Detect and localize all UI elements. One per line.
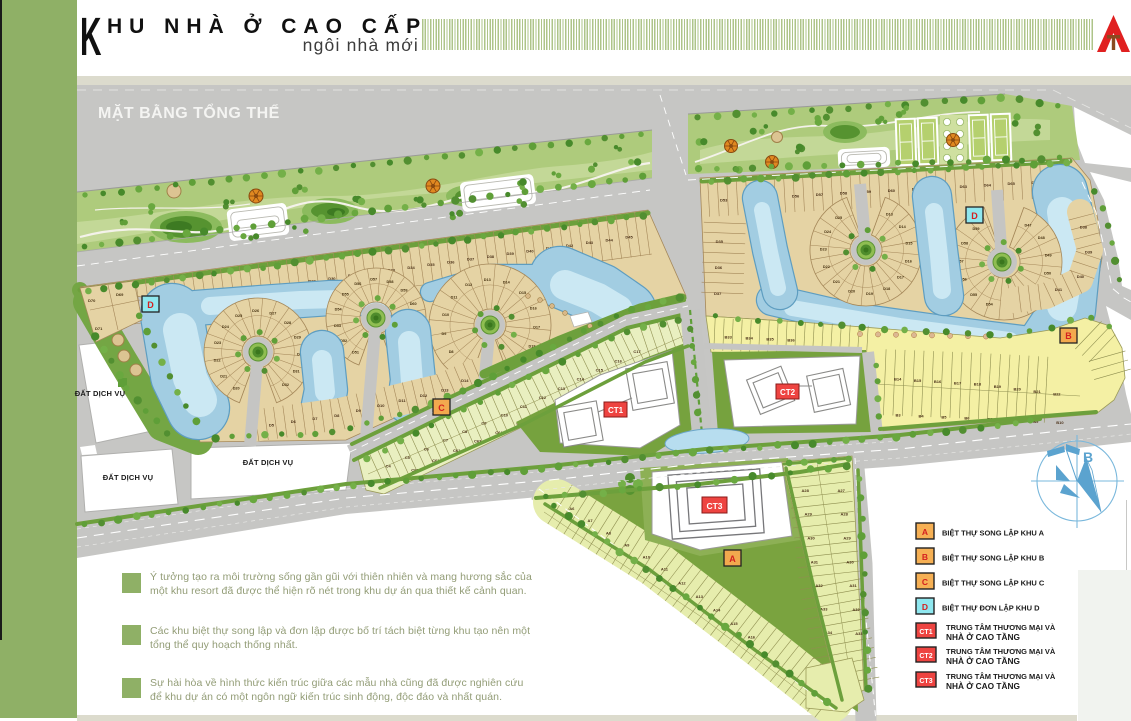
svg-text:D63: D63 bbox=[960, 184, 968, 189]
svg-text:B19: B19 bbox=[994, 384, 1002, 389]
svg-text:A12: A12 bbox=[678, 580, 686, 585]
svg-text:B34: B34 bbox=[746, 336, 754, 341]
svg-text:C10: C10 bbox=[501, 412, 509, 417]
svg-text:D51: D51 bbox=[352, 351, 359, 355]
svg-text:D64: D64 bbox=[984, 183, 992, 188]
svg-text:D69: D69 bbox=[116, 292, 124, 297]
svg-text:TRUNG TÂM THƯƠNG MẠI VÀ: TRUNG TÂM THƯƠNG MẠI VÀ bbox=[946, 647, 1056, 656]
svg-text:D53: D53 bbox=[720, 197, 728, 202]
svg-text:C17: C17 bbox=[633, 349, 641, 354]
svg-text:A13: A13 bbox=[696, 594, 704, 599]
svg-text:A16: A16 bbox=[748, 634, 756, 639]
svg-text:D8: D8 bbox=[449, 350, 454, 354]
svg-text:D36: D36 bbox=[715, 265, 723, 270]
svg-text:CT1: CT1 bbox=[608, 406, 624, 415]
svg-text:D12: D12 bbox=[465, 283, 472, 287]
svg-text:B4: B4 bbox=[919, 414, 925, 419]
svg-text:B: B bbox=[1083, 449, 1093, 465]
svg-text:D11: D11 bbox=[399, 398, 407, 403]
svg-text:C16: C16 bbox=[615, 358, 623, 363]
svg-text:A15: A15 bbox=[730, 621, 738, 626]
svg-text:A28: A28 bbox=[802, 488, 810, 493]
svg-text:D20: D20 bbox=[233, 387, 240, 391]
svg-text:D41: D41 bbox=[1055, 287, 1063, 292]
svg-text:ĐẤT DỊCH VỤ: ĐẤT DỊCH VỤ bbox=[103, 472, 154, 482]
svg-text:D58: D58 bbox=[840, 191, 848, 196]
svg-text:B35: B35 bbox=[766, 336, 774, 341]
svg-text:D16: D16 bbox=[530, 307, 537, 311]
svg-text:D58: D58 bbox=[961, 242, 968, 246]
svg-text:A: A bbox=[729, 554, 736, 564]
svg-text:D54: D54 bbox=[335, 307, 343, 311]
svg-text:D49: D49 bbox=[1045, 253, 1052, 257]
svg-text:A6: A6 bbox=[569, 506, 575, 511]
svg-text:MẶT BẰNG TỔNG THỂ: MẶT BẰNG TỔNG THỂ bbox=[98, 103, 280, 122]
svg-text:D15: D15 bbox=[906, 242, 913, 246]
svg-text:CT3: CT3 bbox=[919, 678, 932, 685]
svg-text:A8: A8 bbox=[606, 530, 612, 535]
svg-text:B20: B20 bbox=[1014, 386, 1022, 391]
svg-text:D40: D40 bbox=[526, 249, 534, 254]
svg-text:BIỆT THỰ SONG LẬP KHU B: BIỆT THỰ SONG LẬP KHU B bbox=[942, 554, 1045, 563]
svg-text:A28: A28 bbox=[841, 512, 849, 517]
svg-text:C: C bbox=[922, 577, 928, 587]
svg-text:BIỆT THỰ SONG LẬP KHU A: BIỆT THỰ SONG LẬP KHU A bbox=[942, 529, 1045, 538]
svg-text:D36: D36 bbox=[447, 259, 455, 264]
svg-text:B: B bbox=[1065, 331, 1072, 341]
svg-text:B14: B14 bbox=[894, 377, 902, 382]
svg-text:D29: D29 bbox=[294, 335, 301, 339]
svg-text:D8: D8 bbox=[334, 413, 340, 418]
svg-text:D47: D47 bbox=[1025, 223, 1032, 227]
svg-text:B3: B3 bbox=[896, 413, 902, 418]
svg-text:D12: D12 bbox=[420, 393, 428, 398]
svg-text:A11: A11 bbox=[661, 567, 669, 572]
svg-text:D38: D38 bbox=[1080, 225, 1088, 230]
svg-text:D48: D48 bbox=[1038, 236, 1045, 240]
svg-text:D37: D37 bbox=[467, 257, 475, 262]
svg-text:D55: D55 bbox=[342, 293, 349, 297]
svg-text:B6: B6 bbox=[964, 416, 970, 421]
svg-text:A7: A7 bbox=[588, 518, 594, 523]
svg-text:D40: D40 bbox=[1077, 274, 1085, 279]
svg-text:D17: D17 bbox=[533, 326, 540, 330]
svg-text:B: B bbox=[922, 552, 928, 562]
svg-text:D18: D18 bbox=[883, 287, 890, 291]
svg-text:D44: D44 bbox=[606, 238, 614, 243]
svg-text:D22: D22 bbox=[823, 265, 830, 269]
svg-text:C4: C4 bbox=[386, 464, 392, 469]
svg-text:D16: D16 bbox=[905, 260, 912, 264]
svg-text:D11: D11 bbox=[451, 296, 458, 300]
svg-text:D24: D24 bbox=[824, 230, 832, 234]
svg-text:D: D bbox=[147, 300, 154, 310]
svg-text:D35: D35 bbox=[716, 239, 724, 244]
svg-text:D56: D56 bbox=[354, 282, 361, 286]
svg-text:C7: C7 bbox=[443, 438, 449, 443]
svg-text:D13: D13 bbox=[886, 212, 893, 216]
svg-text:D10: D10 bbox=[377, 403, 385, 408]
svg-text:D13: D13 bbox=[484, 278, 491, 282]
svg-text:NHÀ Ở CAO TẦNG: NHÀ Ở CAO TẦNG bbox=[946, 655, 1020, 666]
svg-text:D14: D14 bbox=[461, 378, 469, 383]
svg-text:D9: D9 bbox=[356, 408, 362, 413]
svg-text:D25: D25 bbox=[235, 314, 242, 318]
svg-text:D13: D13 bbox=[441, 388, 449, 393]
svg-text:D65: D65 bbox=[1008, 181, 1016, 186]
svg-text:C13: C13 bbox=[558, 386, 566, 391]
svg-text:C15: C15 bbox=[596, 368, 604, 373]
svg-text:B5: B5 bbox=[941, 415, 947, 420]
svg-text:D14: D14 bbox=[899, 225, 907, 229]
svg-text:D59: D59 bbox=[973, 227, 980, 231]
svg-text:A31: A31 bbox=[849, 583, 857, 588]
svg-text:D24: D24 bbox=[222, 325, 230, 329]
svg-text:BIỆT THỰ ĐƠN LẬP KHU D: BIỆT THỰ ĐƠN LẬP KHU D bbox=[942, 604, 1040, 613]
svg-text:D59: D59 bbox=[401, 289, 408, 293]
svg-text:TRUNG TÂM THƯƠNG MẠI VÀ: TRUNG TÂM THƯƠNG MẠI VÀ bbox=[946, 672, 1056, 681]
svg-text:D57: D57 bbox=[816, 192, 824, 197]
svg-text:B21: B21 bbox=[1033, 389, 1041, 394]
svg-text:D23: D23 bbox=[214, 341, 221, 345]
svg-text:C11: C11 bbox=[520, 404, 528, 409]
svg-text:ĐẤT DỊCH VỤ: ĐẤT DỊCH VỤ bbox=[243, 457, 294, 467]
svg-text:A32: A32 bbox=[815, 583, 823, 588]
svg-text:B16: B16 bbox=[934, 379, 942, 384]
svg-text:D70: D70 bbox=[88, 298, 96, 303]
svg-text:D5: D5 bbox=[269, 422, 275, 427]
svg-text:C6: C6 bbox=[424, 446, 430, 451]
svg-text:A30: A30 bbox=[846, 559, 854, 564]
svg-text:D58: D58 bbox=[387, 280, 394, 284]
svg-text:A27: A27 bbox=[838, 488, 846, 493]
svg-text:B36: B36 bbox=[787, 337, 795, 342]
svg-text:D10: D10 bbox=[442, 313, 449, 317]
svg-text:CT2: CT2 bbox=[780, 388, 796, 397]
svg-text:D: D bbox=[971, 211, 978, 221]
svg-text:CT3: CT3 bbox=[706, 501, 722, 511]
svg-text:C8: C8 bbox=[462, 429, 468, 434]
svg-text:D71: D71 bbox=[95, 326, 103, 331]
svg-text:D39: D39 bbox=[507, 251, 515, 256]
svg-text:B18: B18 bbox=[974, 382, 982, 387]
svg-text:D23: D23 bbox=[820, 248, 827, 252]
svg-text:D21: D21 bbox=[220, 375, 227, 379]
svg-text:A30: A30 bbox=[807, 536, 815, 541]
svg-text:D60: D60 bbox=[888, 188, 896, 193]
svg-text:D17: D17 bbox=[897, 276, 904, 280]
svg-text:D39: D39 bbox=[1085, 249, 1093, 254]
svg-text:A14: A14 bbox=[713, 607, 721, 612]
svg-text:D35: D35 bbox=[427, 262, 435, 267]
svg-text:B33: B33 bbox=[725, 335, 733, 340]
svg-text:TRUNG TÂM THƯƠNG MẠI VÀ: TRUNG TÂM THƯƠNG MẠI VÀ bbox=[946, 623, 1056, 632]
svg-text:D37: D37 bbox=[714, 291, 722, 296]
svg-text:D57: D57 bbox=[370, 278, 377, 282]
svg-text:D60: D60 bbox=[410, 302, 417, 306]
svg-text:C14: C14 bbox=[577, 377, 585, 382]
svg-text:D7: D7 bbox=[312, 416, 318, 421]
svg-text:D21: D21 bbox=[833, 280, 840, 284]
svg-text:D31: D31 bbox=[293, 369, 300, 373]
svg-text:A29: A29 bbox=[805, 512, 813, 517]
svg-text:B17: B17 bbox=[954, 380, 962, 385]
svg-text:D27: D27 bbox=[269, 312, 276, 316]
svg-text:A10: A10 bbox=[643, 555, 651, 560]
svg-text:A: A bbox=[922, 527, 928, 537]
svg-text:B22: B22 bbox=[1053, 392, 1061, 397]
svg-text:C9: C9 bbox=[481, 421, 487, 426]
svg-text:D19: D19 bbox=[866, 292, 873, 296]
svg-text:D22: D22 bbox=[214, 358, 221, 362]
svg-text:D20: D20 bbox=[848, 290, 855, 294]
svg-text:B15: B15 bbox=[914, 378, 922, 383]
svg-text:D34: D34 bbox=[407, 265, 415, 270]
svg-text:C: C bbox=[438, 403, 445, 413]
svg-text:NHÀ Ở CAO TẦNG: NHÀ Ở CAO TẦNG bbox=[946, 680, 1020, 691]
svg-text:D56: D56 bbox=[792, 193, 800, 198]
svg-text:D28: D28 bbox=[284, 321, 291, 325]
svg-text:D: D bbox=[922, 602, 928, 612]
svg-text:A32: A32 bbox=[852, 607, 860, 612]
svg-text:D45: D45 bbox=[625, 235, 633, 240]
svg-text:C12: C12 bbox=[539, 395, 547, 400]
svg-text:NHÀ Ở CAO TẦNG: NHÀ Ở CAO TẦNG bbox=[946, 631, 1020, 642]
svg-text:D32: D32 bbox=[282, 383, 289, 387]
svg-text:B10: B10 bbox=[1056, 420, 1064, 425]
svg-text:A31: A31 bbox=[811, 559, 819, 564]
svg-text:D25: D25 bbox=[835, 216, 842, 220]
svg-text:D50: D50 bbox=[1044, 272, 1051, 276]
svg-text:D55: D55 bbox=[970, 293, 977, 297]
svg-text:BIỆT THỰ SONG LẬP KHU C: BIỆT THỰ SONG LẬP KHU C bbox=[942, 579, 1045, 588]
svg-text:D43: D43 bbox=[586, 240, 594, 245]
svg-text:ĐẤT DỊCH VỤ: ĐẤT DỊCH VỤ bbox=[75, 388, 126, 398]
svg-text:D6: D6 bbox=[291, 419, 297, 424]
svg-text:D53: D53 bbox=[334, 324, 341, 328]
svg-text:D9: D9 bbox=[442, 332, 447, 336]
svg-text:D15: D15 bbox=[519, 291, 526, 295]
svg-text:CT2: CT2 bbox=[919, 653, 932, 660]
svg-text:D14: D14 bbox=[503, 281, 511, 285]
svg-text:A29: A29 bbox=[843, 536, 851, 541]
svg-text:D26: D26 bbox=[252, 309, 259, 313]
svg-text:A9: A9 bbox=[624, 542, 630, 547]
svg-text:CT1: CT1 bbox=[919, 629, 932, 636]
svg-text:C5: C5 bbox=[405, 455, 411, 460]
svg-text:D54: D54 bbox=[986, 303, 994, 307]
svg-text:D38: D38 bbox=[487, 254, 495, 259]
